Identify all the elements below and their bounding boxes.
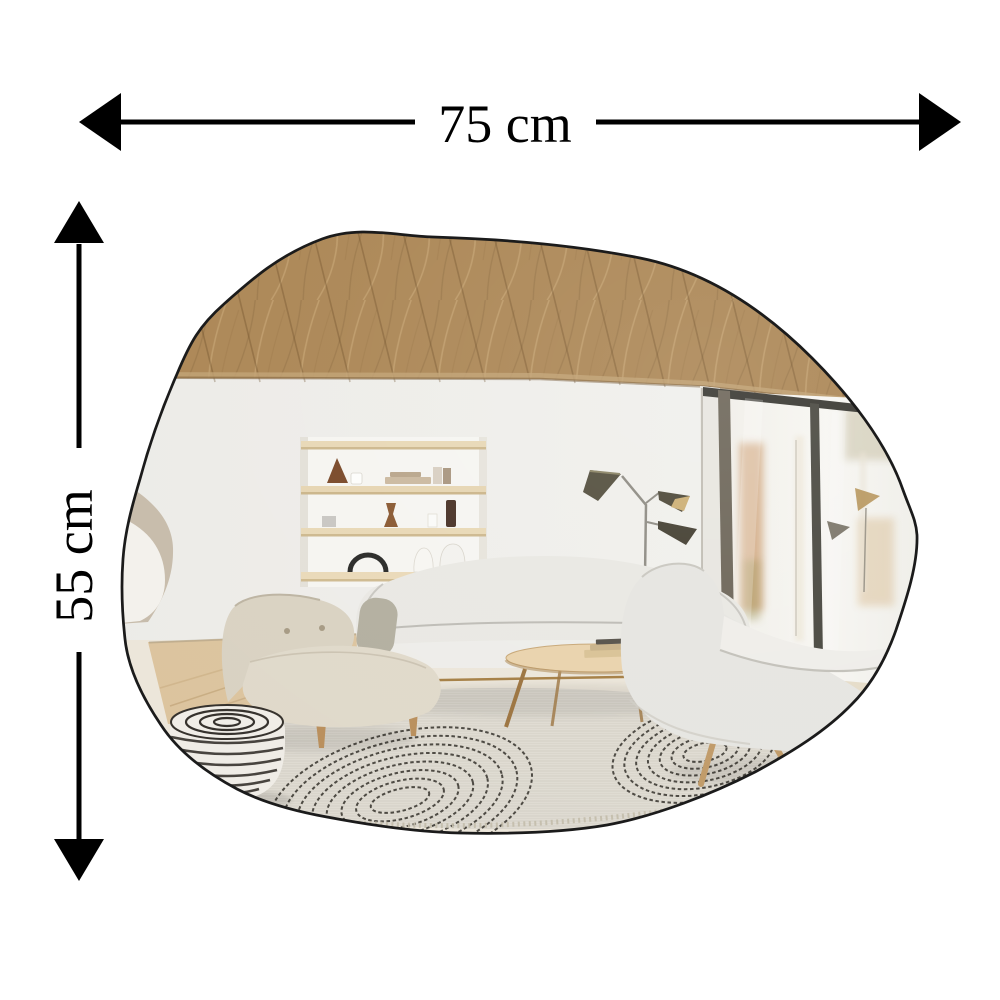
mirror-product (90, 220, 945, 898)
height-dimension-arrow: 55 cm (44, 201, 104, 881)
arrow-right-icon (919, 93, 961, 151)
width-dimension-label: 75 cm (438, 94, 571, 154)
width-dimension-arrow: 75 cm (79, 93, 961, 154)
arrow-down-icon (54, 839, 104, 881)
arrow-up-icon (54, 201, 104, 243)
arrow-left-icon (79, 93, 121, 151)
mirror-sheen (100, 220, 945, 850)
height-dimension-label: 55 cm (44, 489, 104, 622)
product-dimension-image: 75 cm 55 cm (0, 0, 1000, 1000)
diagram-canvas: 75 cm 55 cm (0, 0, 1000, 1000)
